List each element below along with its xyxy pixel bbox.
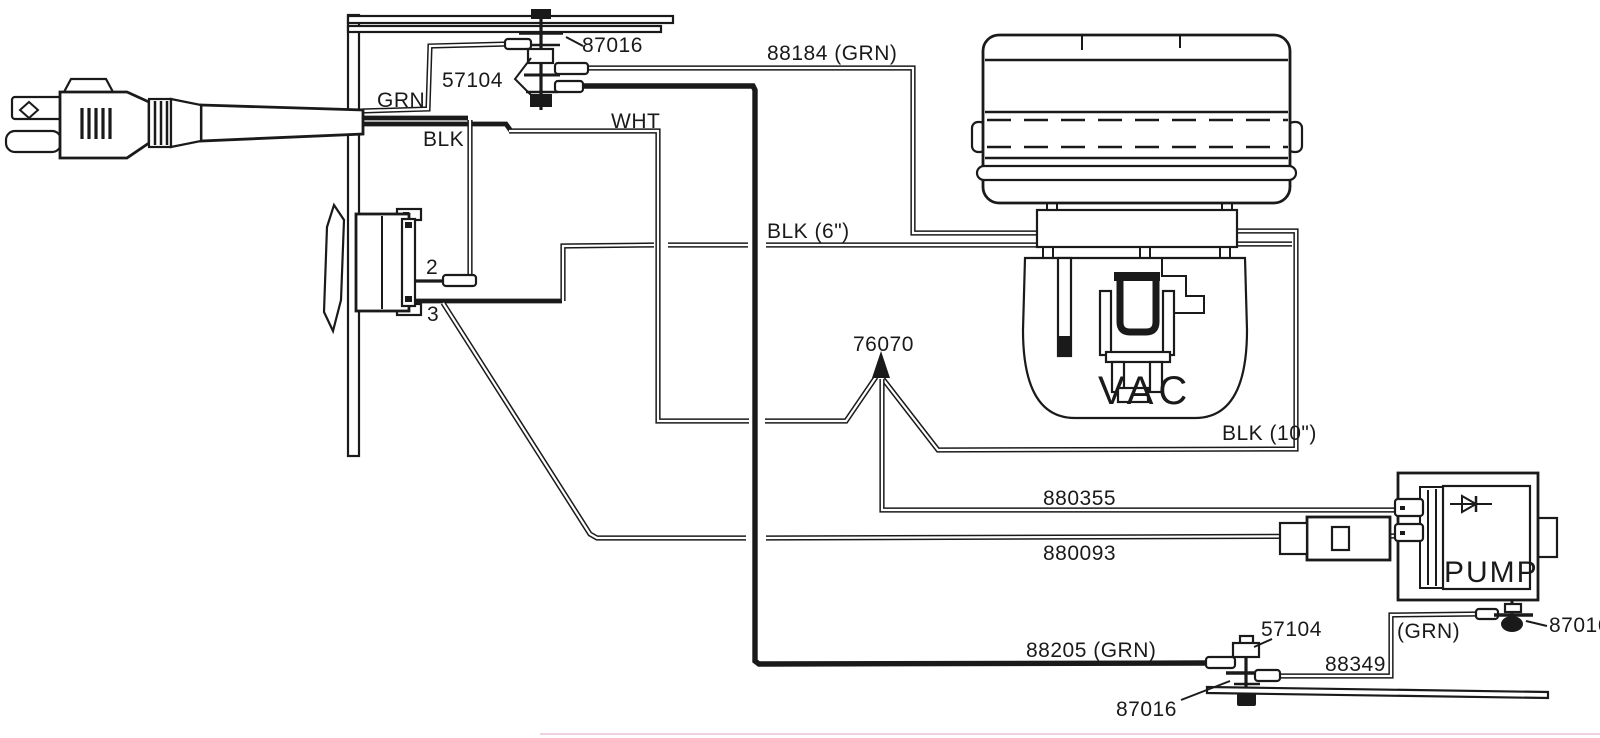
label-vac: VAC: [1098, 369, 1192, 413]
power-cord: [201, 105, 363, 141]
wire-wht-to-splice: [765, 377, 876, 421]
pump-spade-top-dot: [1400, 506, 1405, 510]
screw-nut-right: [1505, 604, 1521, 612]
ground-stud-top: [505, 9, 588, 110]
switch-terminal-3-screw: [405, 296, 412, 302]
leader-87016-top: [566, 37, 583, 46]
screw-head-right: [1501, 616, 1523, 632]
label-pump: PUMP: [1444, 556, 1539, 589]
plug-blade-bottom: [6, 131, 61, 152]
scan-artifact-line: [540, 733, 1600, 735]
label-blk-6in: BLK (6"): [767, 220, 850, 243]
label-87016-top: 87016: [582, 34, 643, 57]
stud-cap: [531, 9, 551, 19]
commutator-cap: [1114, 272, 1160, 281]
label-wht: WHT: [611, 110, 660, 133]
pump-connector-left: [1280, 523, 1307, 554]
switch-terminal-2-screw: [405, 222, 412, 228]
label-57104-top: 57104: [442, 69, 503, 92]
label-terminal-3: 3: [427, 303, 439, 326]
label-76070: 76070: [853, 333, 914, 356]
stud-nut-bottom: [530, 94, 552, 107]
wire-blk-6in: [563, 245, 654, 301]
ring-terminal-88205-end: [1206, 657, 1235, 668]
pump-connector-tab: [1332, 527, 1349, 550]
stud-nut-bottom2: [1233, 643, 1259, 657]
cord-boot: [171, 99, 201, 147]
pump-tab-right: [1538, 518, 1557, 557]
leader-87016-right: [1526, 621, 1547, 626]
label-grn-paren: (GRN): [1397, 620, 1460, 643]
terminal2-connector: [443, 275, 476, 286]
wiring-diagram-page: GRN BLK WHT 87016 57104 88184 (GRN) 2 3 …: [0, 0, 1600, 738]
wiring-diagram: GRN BLK WHT 87016 57104 88184 (GRN) 2 3 …: [0, 0, 1600, 738]
ring-terminal-grn: [505, 39, 531, 49]
flange-right: [1163, 291, 1174, 355]
label-88184: 88184 (GRN): [767, 42, 897, 65]
pump-spade-bottom: [1395, 524, 1423, 541]
rocker-switch: [324, 205, 476, 331]
pump-spade-bottom-dot: [1400, 531, 1405, 535]
stud-nut: [528, 49, 553, 63]
label-87016-bottom: 87016: [1116, 698, 1177, 721]
label-terminal-2: 2: [426, 256, 438, 279]
switch-actuator: [324, 205, 344, 331]
plug-hump: [64, 79, 113, 92]
power-plug: [6, 79, 363, 158]
label-blk: BLK: [423, 128, 464, 151]
wire-wht: [509, 131, 749, 421]
vac-motor: [972, 35, 1302, 418]
label-880093: 880093: [1043, 542, 1116, 565]
label-87016-right: 87016: [1549, 614, 1600, 637]
ring-terminal-88205: [555, 81, 583, 92]
stud-nut-black: [1237, 693, 1256, 706]
motor-strap-stubs-bottom: [1043, 247, 1230, 258]
flange-left: [1100, 291, 1111, 355]
switch-terminal-plate: [402, 219, 415, 306]
label-57104-bottom: 57104: [1261, 618, 1322, 641]
brush-plate-left-tip: [1059, 336, 1070, 356]
label-88205: 88205 (GRN): [1026, 639, 1156, 662]
bottom-bracket-bar: [1207, 687, 1548, 698]
motor-rim: [977, 166, 1296, 180]
ground-screw-right: [1476, 600, 1547, 632]
label-grn: GRN: [377, 89, 425, 112]
ring-terminal-88349: [1255, 670, 1280, 681]
wires: [362, 44, 1478, 676]
pump-spade-top: [1395, 499, 1423, 516]
motor-strap: [1037, 210, 1237, 247]
foot-bar: [1106, 352, 1170, 362]
label-88349: 88349: [1325, 653, 1386, 676]
label-blk-10in: BLK (10"): [1222, 422, 1317, 445]
ring-terminal-88184: [555, 63, 588, 74]
label-880355: 880355: [1043, 487, 1116, 510]
